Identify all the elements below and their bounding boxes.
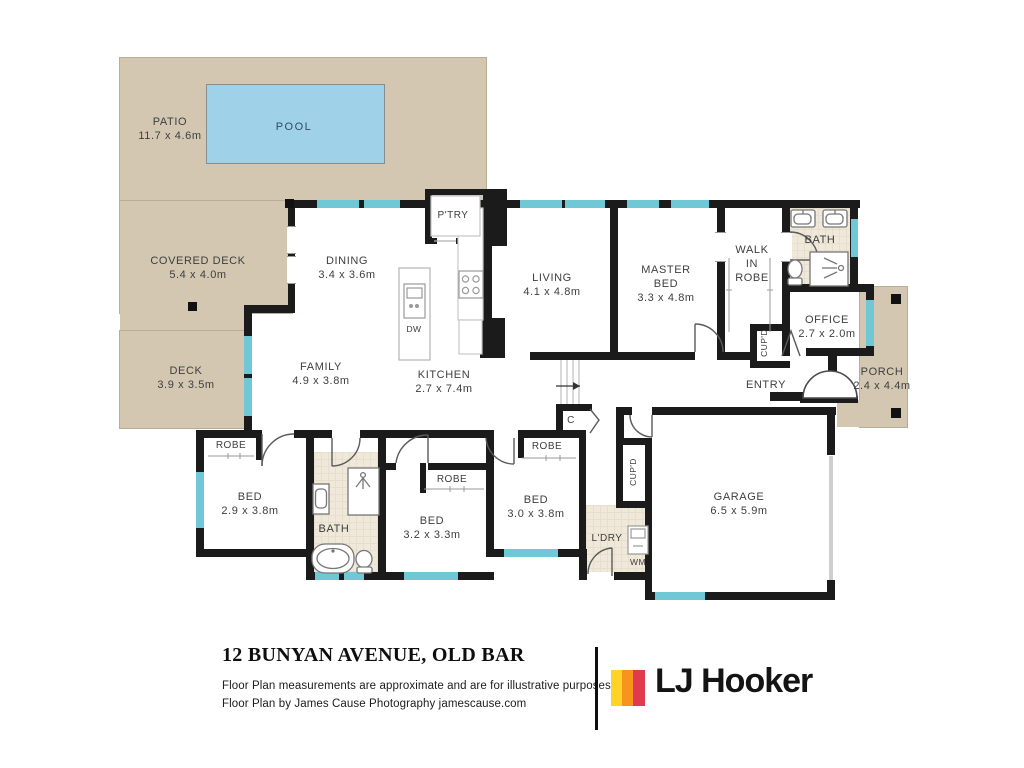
stove-icon — [459, 271, 483, 298]
sink-icon — [823, 210, 847, 227]
dishwasher-icon — [404, 284, 425, 318]
bifold-door-cupd-hall — [782, 331, 800, 356]
entry-door-arc — [803, 371, 857, 398]
kitchen-label: KITCHEN2.7 x 7.4m — [415, 368, 472, 396]
deck-label: DECK3.9 x 3.5m — [157, 364, 214, 392]
kitchen-counter-lower — [459, 320, 482, 354]
robe3-label: ROBE — [532, 440, 562, 454]
door-arc-bed2 — [396, 435, 428, 463]
door-arc-master-bed — [695, 324, 723, 352]
pool-label: POOL — [276, 120, 313, 134]
c-cupboard-label: C — [567, 414, 575, 428]
toilet-icon — [356, 551, 372, 574]
dishwasher-label: DW — [407, 322, 422, 336]
wm-label: WM — [630, 555, 646, 569]
door-arc-bed3 — [486, 438, 514, 464]
shower-icon — [810, 252, 848, 286]
garage-label: GARAGE6.5 x 5.9m — [710, 490, 767, 518]
family-label: FAMILY4.9 x 3.8m — [292, 360, 349, 388]
sink-icon — [791, 210, 815, 227]
disclaimer-line-1: Floor Plan measurements are approximate … — [222, 680, 638, 692]
walk-in-robe-label: WALK IN ROBE — [729, 243, 775, 285]
bathtub-icon — [312, 544, 354, 573]
shower-icon — [348, 468, 379, 515]
porch-label: PORCH2.4 x 4.4m — [853, 365, 910, 393]
toilet-icon — [788, 260, 802, 285]
floor-plan-page: PATIO11.7 x 4.6m POOL COVERED DECK5.4 x … — [0, 0, 1024, 768]
door-flap-c-cupboard — [590, 409, 599, 433]
main-bath-label: BATH — [319, 522, 350, 536]
dining-label: DINING3.4 x 3.6m — [318, 254, 375, 282]
covered-deck-label: COVERED DECK5.4 x 4.0m — [150, 254, 245, 282]
door-arc-garage — [630, 415, 652, 437]
stairs-direction-arrow — [556, 382, 580, 390]
vanity-icon — [313, 484, 329, 514]
bed2-label: BED3.2 x 3.3m — [403, 514, 460, 542]
door-arc-bed1 — [262, 434, 294, 466]
footer-divider — [595, 647, 598, 730]
cupd-hall-label: CUP'D — [757, 329, 771, 357]
patio-label: PATIO11.7 x 4.6m — [138, 115, 201, 143]
bed3-label: BED3.0 x 3.8m — [507, 493, 564, 521]
pantry-label: P'TRY — [438, 209, 469, 223]
entry-label: ENTRY — [746, 378, 786, 392]
door-arc-bath-main — [332, 438, 360, 466]
cupd-garage-label: CUP'D — [626, 458, 640, 486]
brand-logo-text: LJ Hooker — [655, 662, 812, 701]
robe1-label: ROBE — [216, 439, 246, 453]
ensuite-bath-label: BATH — [805, 233, 836, 247]
property-address: 12 BUNYAN AVENUE, OLD BAR — [222, 644, 525, 667]
brand-stripe-red — [633, 670, 645, 706]
laundry-label: L'DRY — [592, 532, 623, 546]
office-label: OFFICE2.7 x 2.0m — [798, 313, 855, 341]
robe2-label: ROBE — [437, 473, 467, 487]
disclaimer-line-2: Floor Plan by James Cause Photography ja… — [222, 698, 526, 710]
bed1-label: BED2.9 x 3.8m — [221, 490, 278, 518]
stairs — [561, 360, 579, 404]
master-bed-label: MASTER BED3.3 x 4.8m — [634, 263, 698, 305]
brand-stripe-yellow — [611, 670, 622, 706]
living-label: LIVING4.1 x 4.8m — [523, 271, 580, 299]
brand-stripe-orange — [622, 670, 633, 706]
washing-machine-icon — [628, 526, 648, 554]
door-arc-laundry — [588, 548, 612, 576]
